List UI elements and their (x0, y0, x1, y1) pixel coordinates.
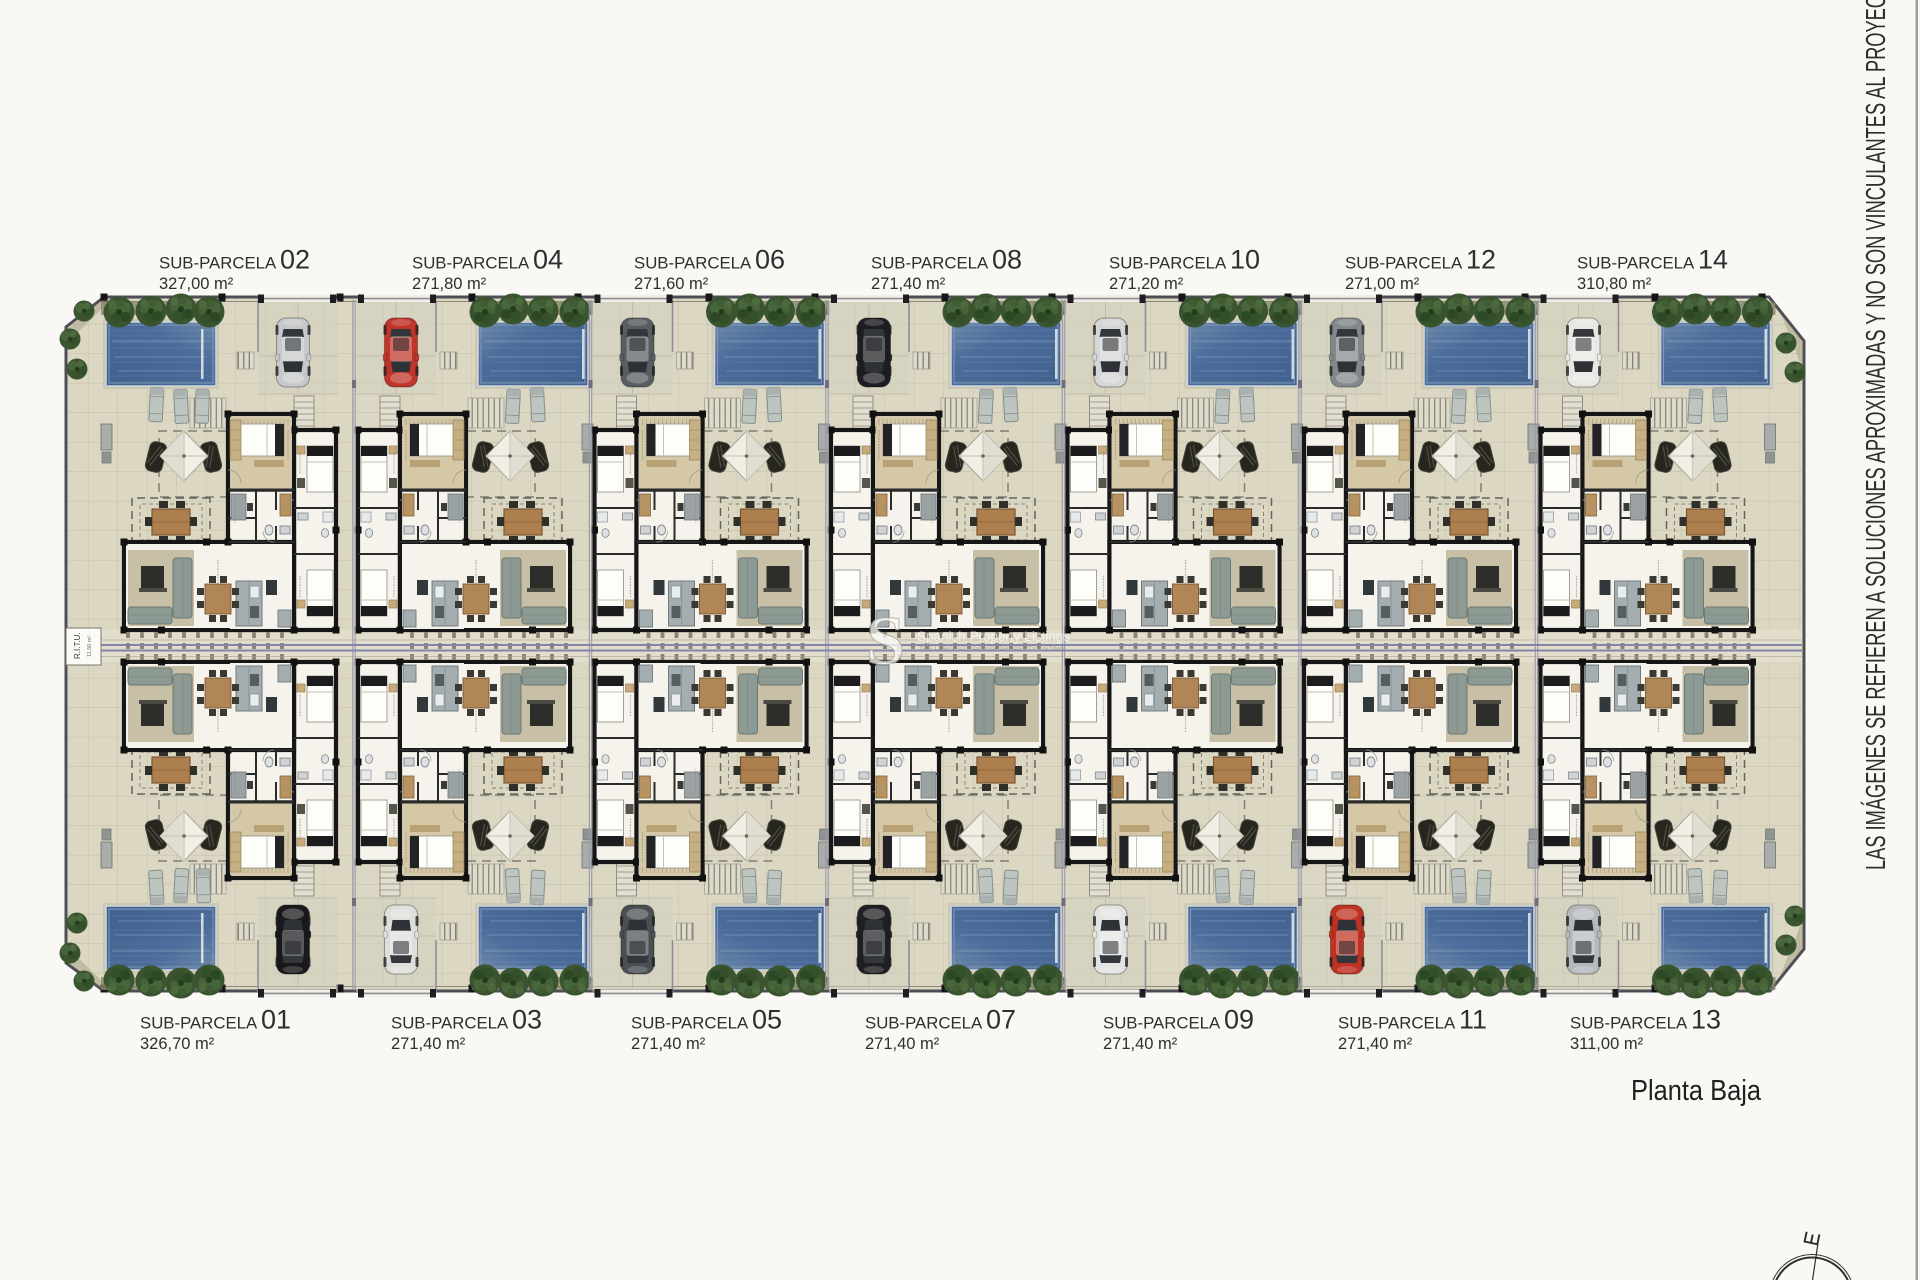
svg-text:271,40 m²: 271,40 m² (871, 275, 946, 293)
svg-text:271,20 m²: 271,20 m² (1109, 275, 1184, 293)
svg-text:271,60 m²: 271,60 m² (634, 275, 709, 293)
svg-text:311,00 m²: 311,00 m² (1570, 1035, 1644, 1053)
svg-text:271,40 m²: 271,40 m² (631, 1035, 706, 1053)
svg-text:310,80 m²: 310,80 m² (1577, 275, 1652, 293)
svg-text:271,00 m²: 271,00 m² (1345, 275, 1420, 293)
svg-text:327,00 m²: 327,00 m² (159, 275, 234, 293)
svg-text:326,70 m²: 326,70 m² (140, 1035, 215, 1053)
svg-text:11,50 m²: 11,50 m² (87, 636, 93, 657)
svg-text:S: S (866, 603, 905, 680)
svg-text:Spanish Property Listings: Spanish Property Listings (917, 629, 1070, 644)
svg-text:271,40 m²: 271,40 m² (865, 1035, 940, 1053)
svg-text:271,40 m²: 271,40 m² (1103, 1035, 1178, 1053)
svg-text:LAS IMÁGENES SE REFIEREN A SOL: LAS IMÁGENES SE REFIEREN A SOLUCIONES AP… (1860, 0, 1891, 870)
svg-text:271,40 m²: 271,40 m² (391, 1035, 466, 1053)
svg-text:R.I.T.U.: R.I.T.U. (73, 632, 82, 659)
svg-text:Planta Baja: Planta Baja (1631, 1075, 1762, 1107)
svg-text:271,80 m²: 271,80 m² (412, 275, 487, 293)
svg-text:271,40 m²: 271,40 m² (1338, 1035, 1413, 1053)
svg-text:THE LARGEST SPANISH PROPERTY L: THE LARGEST SPANISH PROPERTY LISTING (919, 646, 1065, 653)
